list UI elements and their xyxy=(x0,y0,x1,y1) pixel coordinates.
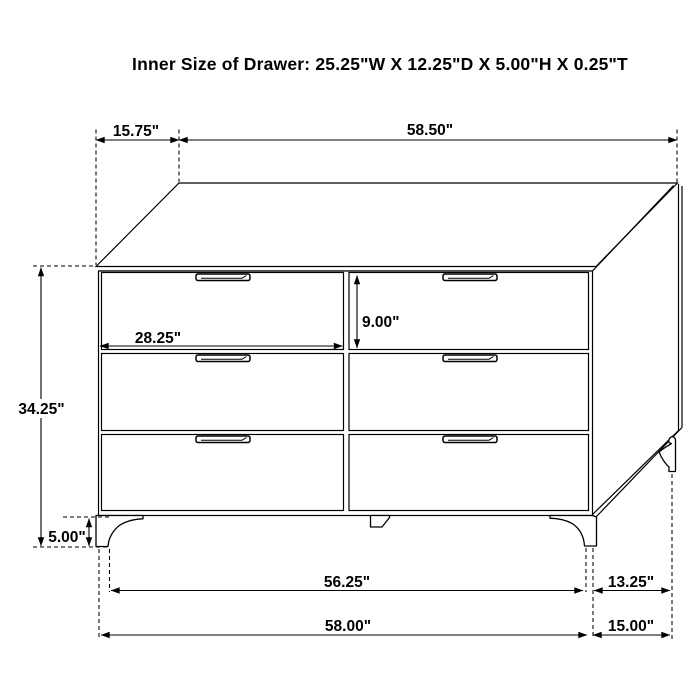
dresser-top-face xyxy=(96,183,678,267)
dresser-outline xyxy=(96,183,682,547)
diagram-canvas: 15.75" 58.50" 28.25" 9.00" 34.25" 5.00" … xyxy=(0,0,700,700)
drawer-front-middle-left xyxy=(102,354,344,431)
center-leg xyxy=(371,516,390,528)
front-right-leg xyxy=(550,516,597,547)
side-bottom-edge-inner xyxy=(592,431,679,516)
dim-label-top-depth-offset: 15.75" xyxy=(113,123,159,140)
dim-label-width-between-legs: 56.25" xyxy=(324,574,370,591)
dim-label-leg-depth-spacing: 13.25" xyxy=(608,574,654,591)
drawer-front-bottom-left xyxy=(102,435,344,511)
dim-label-top-width: 58.50" xyxy=(407,122,453,139)
dim-label-drawer-height: 9.00" xyxy=(362,314,400,331)
drawer-front-middle-right xyxy=(349,354,589,431)
dim-label-overall-depth: 15.00" xyxy=(608,618,654,635)
dim-label-base-width: 58.00" xyxy=(325,618,371,635)
drawer-front-top-right xyxy=(349,273,589,350)
dresser-dimension-diagram: Inner Size of Drawer: 25.25"W X 12.25"D … xyxy=(0,0,700,700)
dim-label-drawer-width: 28.25" xyxy=(135,330,181,347)
dim-label-leg-height: 5.00" xyxy=(48,529,86,546)
front-left-leg xyxy=(96,516,143,547)
drawer-front-bottom-right xyxy=(349,435,589,511)
dim-label-overall-height: 34.25" xyxy=(18,401,64,418)
